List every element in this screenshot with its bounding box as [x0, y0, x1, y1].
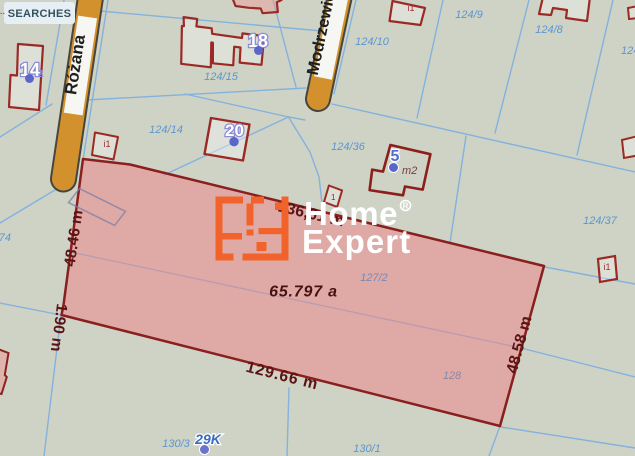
svg-text:i1: i1: [407, 3, 414, 13]
svg-text:SEARCHES: SEARCHES: [8, 8, 72, 20]
svg-text:124/9: 124/9: [455, 9, 483, 21]
svg-text:124/15: 124/15: [204, 71, 239, 83]
svg-text:74: 74: [0, 232, 11, 244]
svg-text:i1: i1: [103, 139, 110, 149]
svg-text:29K: 29K: [194, 431, 222, 447]
svg-text:i1: i1: [603, 262, 610, 272]
svg-text:124/36: 124/36: [331, 141, 366, 153]
svg-text:Expert: Expert: [302, 223, 411, 260]
svg-text:...: ...: [0, 6, 5, 17]
svg-text:124/10: 124/10: [355, 36, 390, 48]
svg-text:124/7: 124/7: [621, 45, 635, 57]
svg-text:m2: m2: [402, 165, 417, 177]
svg-text:124/14: 124/14: [149, 124, 183, 136]
svg-text:R: R: [403, 202, 409, 211]
svg-text:65.797 a: 65.797 a: [269, 284, 338, 301]
svg-text:124/8: 124/8: [535, 24, 563, 36]
svg-text:130/3: 130/3: [162, 438, 190, 450]
svg-text:130/1: 130/1: [353, 443, 381, 455]
svg-text:2: 2: [38, 69, 44, 80]
svg-text:128: 128: [443, 370, 462, 382]
svg-text:127/2: 127/2: [360, 272, 388, 284]
svg-text:124/37: 124/37: [583, 215, 618, 227]
